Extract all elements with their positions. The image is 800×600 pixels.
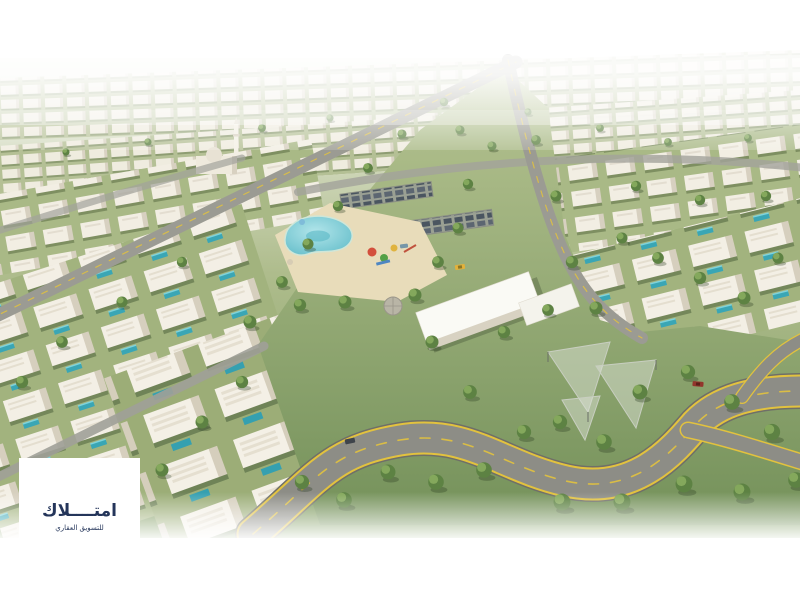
red-car <box>692 381 703 387</box>
bottom-margin <box>0 538 800 600</box>
round-shade-structure <box>384 297 402 315</box>
umbrella <box>287 259 293 265</box>
sky-fade <box>0 0 800 150</box>
brand-title: امتــــلاك <box>42 503 117 520</box>
aerial-render-scene: امتــــلاك للتسويق العقاري <box>0 0 800 600</box>
brand-tagline: للتسويق العقاري <box>55 524 103 532</box>
watermark-logo: امتــــلاك للتسويق العقاري <box>19 458 140 540</box>
umbrella <box>299 219 305 225</box>
